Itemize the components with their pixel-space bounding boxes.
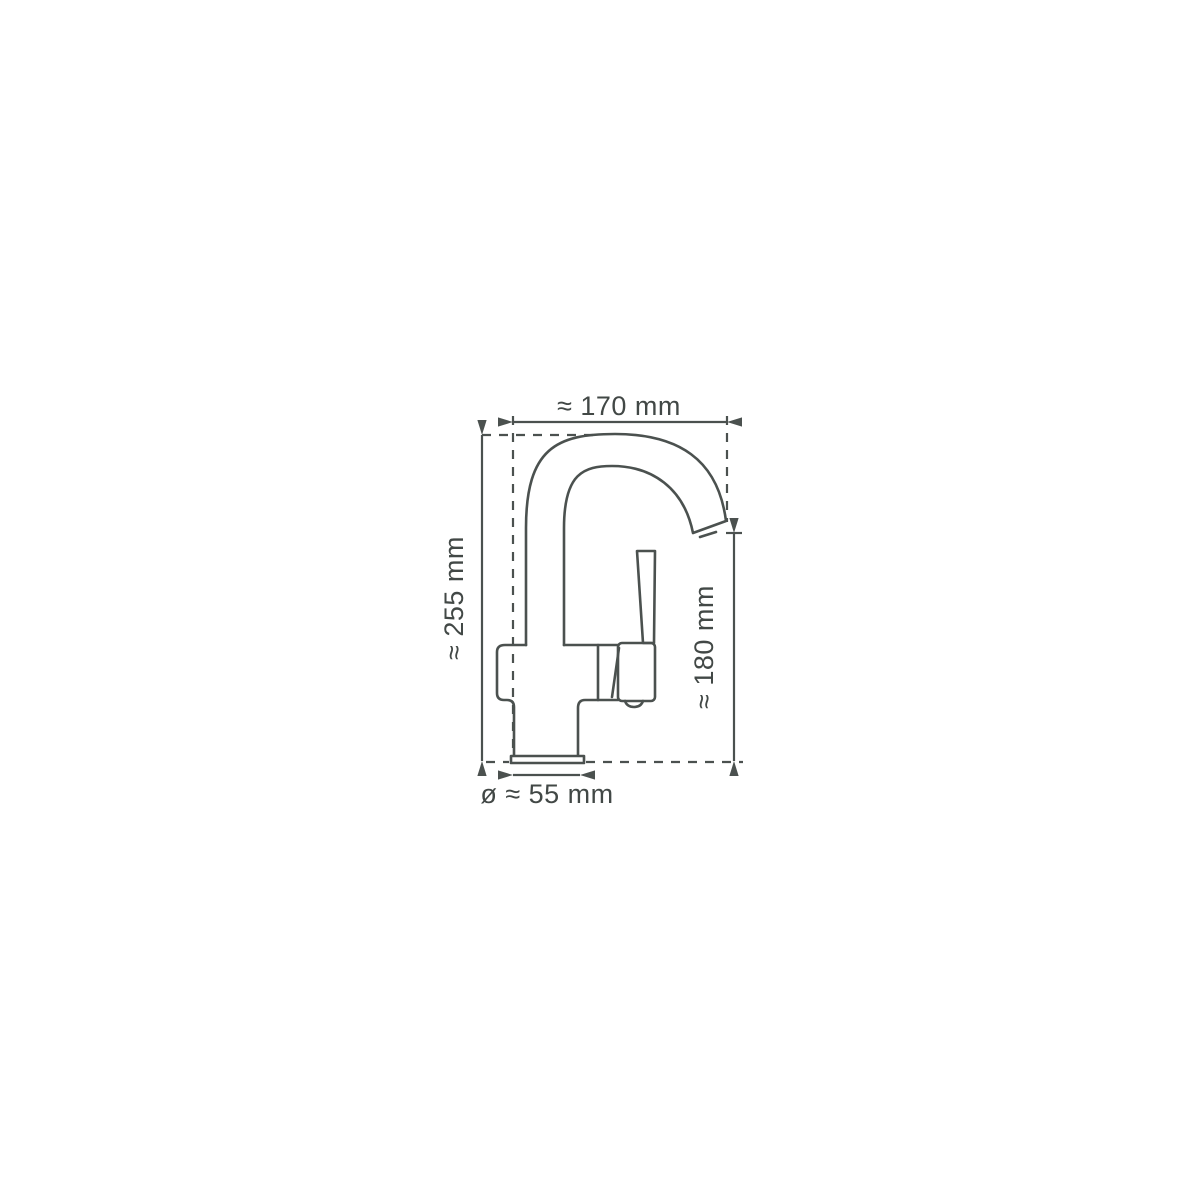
dimension-height-label: ≈ 255 mm [439,536,469,660]
page-background: ≈ 170 mm ≈ 255 mm ≈ 180 mm ø ≈ 55 mm [0,0,1200,1200]
body-step-right [578,700,618,755]
cartridge-body [618,643,655,701]
dimension-width-label: ≈ 170 mm [557,391,681,421]
dimension-base-label: ø ≈ 55 mm [480,779,613,809]
handle-lever [637,551,655,643]
body-outline-left [497,645,526,755]
dimension-spout-height-label: ≈ 180 mm [689,585,719,709]
base-flange [511,756,584,763]
faucet-dimension-diagram: ≈ 170 mm ≈ 255 mm ≈ 180 mm ø ≈ 55 mm [0,0,1200,1200]
spout-aerator-line [700,532,716,537]
